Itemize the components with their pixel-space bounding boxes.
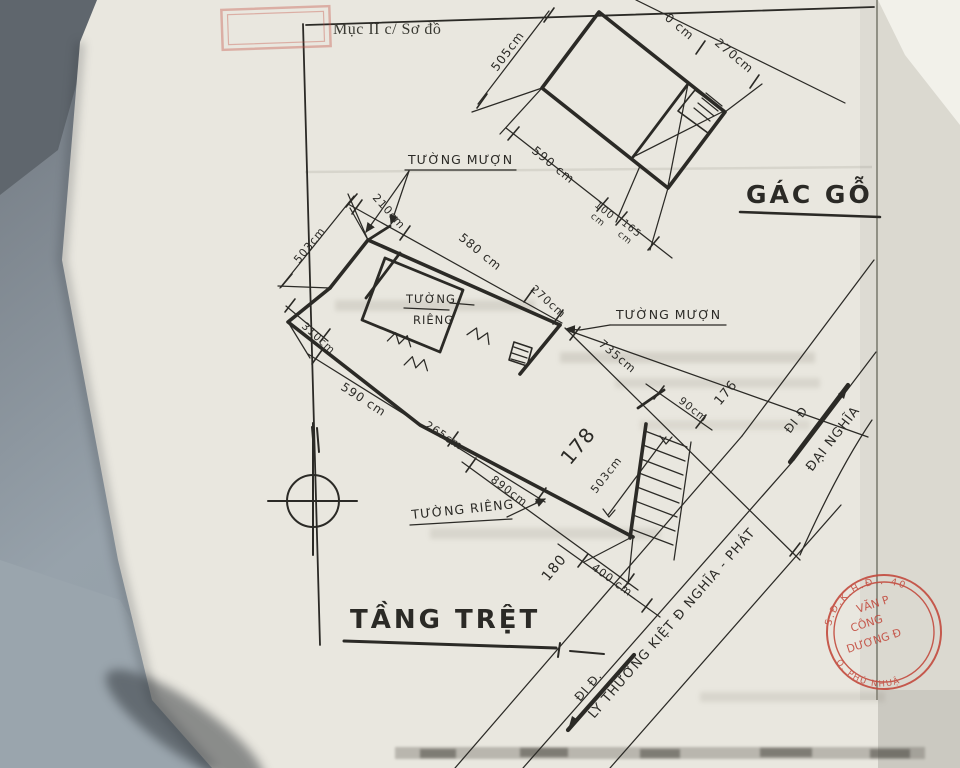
second-page-tint [878, 0, 960, 768]
borrowed-wall-right-text: TƯỜNG MƯỢN [615, 307, 721, 322]
section-label: Mục II c/ Sơ đồ [333, 21, 441, 38]
attic-title-text: GÁC GỖ [746, 176, 873, 209]
private-room-line1: TƯỜNG [405, 291, 456, 306]
paper-sheet [62, 0, 960, 768]
private-room-line2: RIÊNG [413, 312, 454, 327]
borrowed-wall-left-text: TƯỜNG MƯỢN [407, 152, 513, 167]
paper [62, 0, 960, 768]
ground-title-text: TẦNG TRỆT [350, 600, 540, 635]
scanned-survey-document: Mục II c/ Sơ đồ 505cm [0, 0, 960, 768]
fold-shade [860, 0, 878, 700]
